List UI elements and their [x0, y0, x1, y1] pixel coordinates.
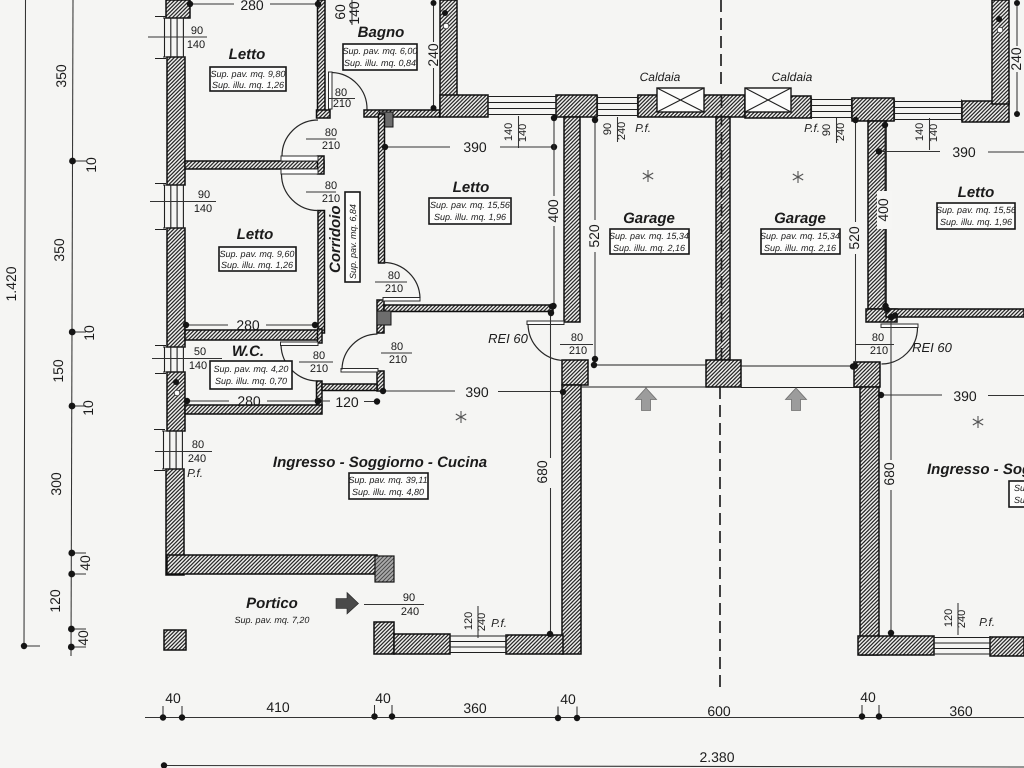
svg-text:240: 240 [188, 453, 206, 465]
svg-text:Sup. illu. mq. 2,16: Sup. illu. mq. 2,16 [613, 243, 685, 253]
svg-text:280: 280 [237, 393, 261, 409]
svg-text:P.f.: P.f. [635, 123, 651, 135]
svg-text:Sup. illu. mq. 0,70: Sup. illu. mq. 0,70 [215, 376, 287, 386]
svg-text:360: 360 [949, 703, 973, 719]
svg-text:90: 90 [198, 189, 210, 201]
svg-text:680: 680 [881, 462, 897, 486]
svg-text:40: 40 [560, 691, 576, 707]
svg-text:600: 600 [707, 703, 731, 719]
svg-text:90: 90 [191, 25, 203, 37]
svg-text:360: 360 [463, 700, 487, 716]
svg-text:140: 140 [187, 39, 205, 51]
svg-text:40: 40 [165, 690, 181, 706]
svg-text:80: 80 [391, 341, 403, 353]
svg-text:240: 240 [425, 43, 441, 67]
svg-text:210: 210 [333, 98, 351, 110]
svg-text:350: 350 [51, 238, 67, 262]
svg-text:240: 240 [401, 606, 419, 618]
svg-text:210: 210 [870, 345, 888, 357]
svg-text:Sup. pa: Sup. pa [1014, 483, 1024, 493]
svg-text:50: 50 [194, 346, 206, 358]
svg-text:Sup. pav. mq. 15,56: Sup. pav. mq. 15,56 [430, 200, 510, 210]
svg-text:P.f.: P.f. [187, 468, 203, 480]
svg-text:520: 520 [586, 224, 602, 248]
svg-text:210: 210 [569, 345, 587, 357]
svg-text:Sup. ill: Sup. ill [1014, 495, 1024, 505]
svg-text:Letto: Letto [229, 46, 266, 63]
svg-text:Sup. pav. mq. 15,34: Sup. pav. mq. 15,34 [760, 231, 840, 241]
svg-text:Sup. pav. mq. 15,34: Sup. pav. mq. 15,34 [609, 231, 689, 241]
svg-text:Sup. illu. mq. 1,96: Sup. illu. mq. 1,96 [940, 217, 1012, 227]
svg-text:Ingresso - Soggiorno: Ingresso - Soggiorno [927, 461, 1024, 478]
svg-text:300: 300 [48, 472, 64, 496]
svg-text:Caldaia: Caldaia [772, 70, 813, 84]
svg-text:Garage: Garage [774, 210, 826, 227]
svg-text:80: 80 [313, 350, 325, 362]
svg-text:Portico: Portico [246, 595, 298, 612]
svg-text:400: 400 [545, 199, 561, 223]
svg-text:Caldaia: Caldaia [640, 70, 681, 84]
svg-text:Sup. pav. mq. 7,20: Sup. pav. mq. 7,20 [235, 615, 310, 625]
svg-text:280: 280 [240, 0, 264, 13]
svg-text:520: 520 [846, 226, 862, 250]
svg-text:Sup. illu. mq. 1,96: Sup. illu. mq. 1,96 [434, 212, 506, 222]
svg-text:120: 120 [47, 589, 63, 613]
svg-text:80: 80 [872, 332, 884, 344]
svg-text:40: 40 [75, 630, 91, 646]
svg-text:Letto: Letto [237, 226, 274, 243]
svg-text:10: 10 [83, 157, 99, 173]
svg-text:P.f.: P.f. [804, 123, 820, 135]
svg-text:Ingresso - Soggiorno - Cucina: Ingresso - Soggiorno - Cucina [273, 454, 487, 471]
svg-text:210: 210 [310, 363, 328, 375]
svg-text:Sup. pav. mq. 15,56: Sup. pav. mq. 15,56 [936, 205, 1016, 215]
svg-text:80: 80 [192, 439, 204, 451]
svg-text:80: 80 [325, 127, 337, 139]
svg-text:350: 350 [53, 64, 69, 88]
svg-text:80: 80 [325, 180, 337, 192]
svg-text:Sup. pav. mq. 39,11: Sup. pav. mq. 39,11 [348, 475, 427, 485]
svg-text:390: 390 [463, 139, 487, 155]
svg-text:1.420: 1.420 [3, 266, 19, 301]
svg-text:10: 10 [81, 325, 97, 341]
svg-text:140: 140 [914, 123, 926, 141]
svg-text:Sup. pav. mq. 9,80: Sup. pav. mq. 9,80 [211, 69, 286, 79]
svg-text:P.f.: P.f. [491, 618, 507, 630]
svg-text:Sup. pav. mq. 9,60: Sup. pav. mq. 9,60 [220, 249, 295, 259]
svg-text:120: 120 [943, 609, 955, 627]
svg-text:140: 140 [189, 360, 207, 372]
svg-text:Garage: Garage [623, 210, 675, 227]
svg-text:90: 90 [403, 592, 415, 604]
svg-text:Sup. pav. mq. 6,84: Sup. pav. mq. 6,84 [348, 204, 358, 279]
svg-text:680: 680 [534, 460, 550, 484]
svg-text:40: 40 [860, 689, 876, 705]
svg-text:80: 80 [388, 270, 400, 282]
svg-text:90: 90 [821, 124, 833, 136]
svg-text:140: 140 [346, 1, 362, 25]
svg-text:120: 120 [463, 612, 475, 630]
svg-text:400: 400 [875, 198, 891, 222]
svg-text:Sup. illu. mq. 0,84: Sup. illu. mq. 0,84 [344, 58, 416, 68]
svg-text:REI 60: REI 60 [488, 331, 529, 346]
svg-text:140: 140 [194, 203, 212, 215]
svg-text:390: 390 [465, 384, 489, 400]
svg-text:Sup. pav. mq. 4,20: Sup. pav. mq. 4,20 [214, 364, 289, 374]
svg-text:Sup. illu. mq. 4,80: Sup. illu. mq. 4,80 [352, 487, 424, 497]
svg-text:240: 240 [1008, 47, 1024, 71]
svg-text:W.C.: W.C. [232, 343, 264, 360]
svg-text:210: 210 [322, 140, 340, 152]
svg-text:150: 150 [50, 359, 66, 383]
svg-text:40: 40 [77, 555, 93, 571]
svg-text:Corridoio: Corridoio [327, 206, 344, 274]
svg-text:390: 390 [953, 388, 977, 404]
svg-text:REI 60: REI 60 [912, 340, 953, 355]
svg-text:Sup. illu. mq. 1,26: Sup. illu. mq. 1,26 [221, 260, 293, 270]
svg-text:280: 280 [236, 317, 260, 333]
svg-text:390: 390 [952, 144, 976, 160]
svg-text:Sup. illu. mq. 2,16: Sup. illu. mq. 2,16 [764, 243, 836, 253]
svg-text:210: 210 [389, 354, 407, 366]
svg-text:210: 210 [322, 193, 340, 205]
svg-text:Bagno: Bagno [358, 24, 405, 41]
svg-text:410: 410 [266, 699, 290, 715]
svg-text:Letto: Letto [958, 184, 995, 201]
svg-text:40: 40 [375, 690, 391, 706]
svg-text:2.380: 2.380 [699, 749, 734, 765]
svg-text:120: 120 [335, 394, 359, 410]
svg-text:P.f.: P.f. [979, 617, 995, 629]
svg-text:Sup. illu. mq. 1,26: Sup. illu. mq. 1,26 [212, 80, 284, 90]
svg-text:90: 90 [602, 123, 614, 135]
svg-text:10: 10 [80, 400, 96, 416]
svg-text:80: 80 [571, 332, 583, 344]
svg-text:140: 140 [503, 123, 515, 141]
svg-text:Letto: Letto [453, 179, 490, 196]
svg-text:210: 210 [385, 283, 403, 295]
svg-text:Sup. pav. mq. 6,00: Sup. pav. mq. 6,00 [343, 46, 418, 56]
